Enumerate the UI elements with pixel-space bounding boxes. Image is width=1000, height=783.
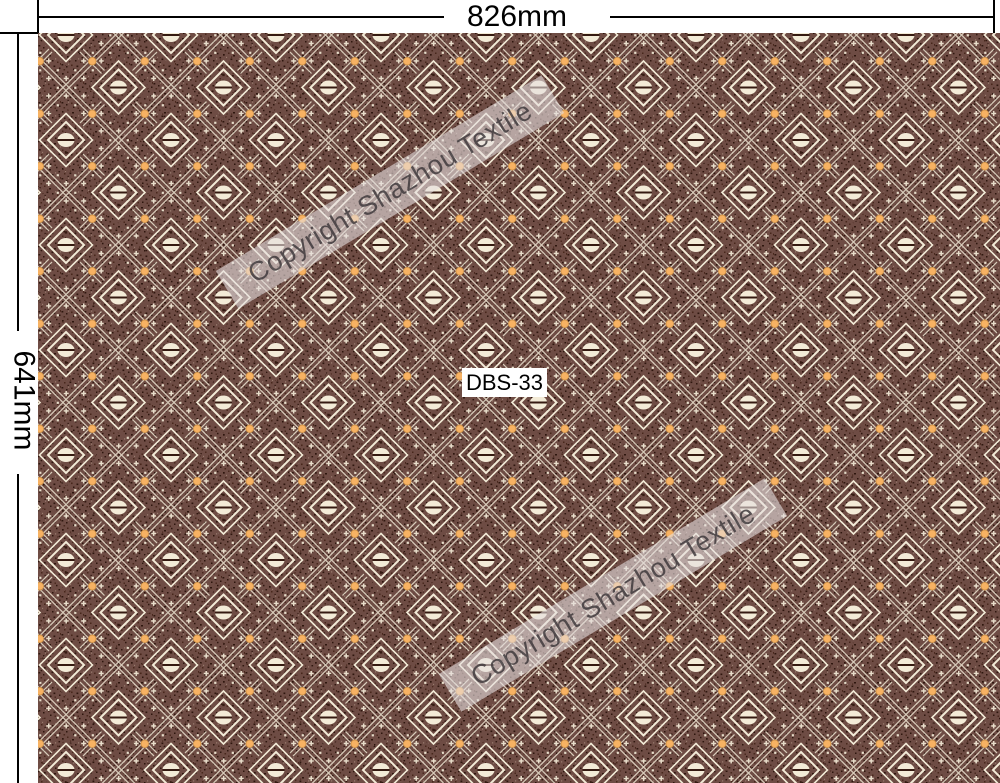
height-dimension-label: 641mm — [8, 336, 41, 466]
width-dimension-line-right — [610, 16, 994, 18]
height-dimension-line-lower — [17, 474, 19, 783]
height-dimension-tick-top — [0, 32, 38, 34]
pattern-code-label: DBS-33 — [462, 368, 547, 397]
textile-spec-sheet: 826mm 641mm — [0, 0, 1000, 783]
width-dimension-line-left — [38, 16, 444, 18]
height-dimension-line-upper — [17, 33, 19, 331]
fabric-swatch: Copyright Shazhou Textile Copyright Shaz… — [38, 33, 1000, 783]
width-dimension-label: 826mm — [452, 1, 582, 33]
